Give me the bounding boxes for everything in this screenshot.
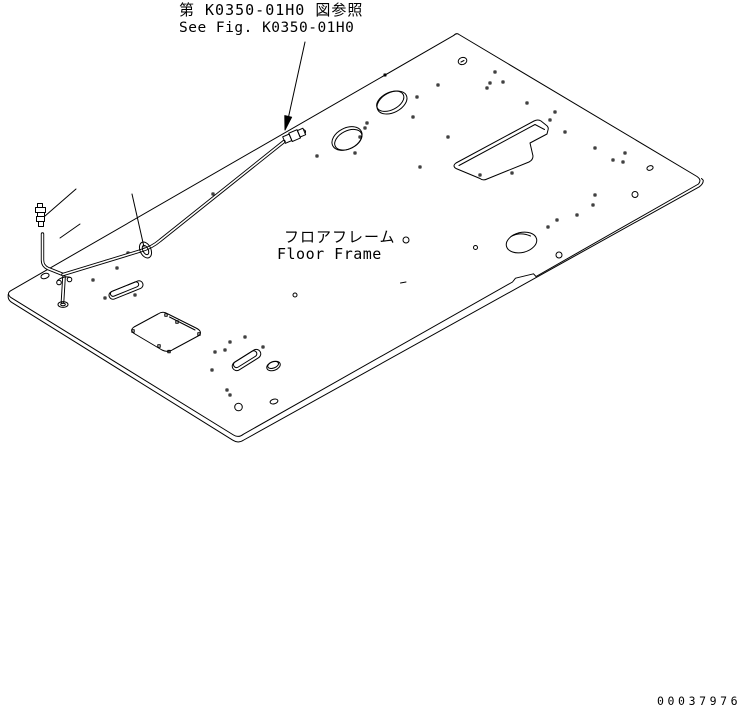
- grease-line-assembly: [36, 127, 308, 308]
- leader-to-clamp: [132, 194, 144, 247]
- reference-note-en: See Fig. K0350-01H0: [179, 20, 354, 37]
- leader-to-tube-end: [60, 224, 80, 238]
- small-hole: [293, 293, 297, 297]
- grease-tube: [43, 142, 285, 303]
- part-label-en: Floor Frame: [277, 246, 382, 263]
- small-hole: [474, 246, 478, 250]
- reference-note-ja: 第 K0350-01H0 図参照: [179, 2, 363, 19]
- oval-hole-upper: [373, 86, 411, 119]
- small-hole-apex: [457, 56, 468, 66]
- small-hole: [646, 165, 654, 171]
- stepped-cutout: [454, 120, 548, 180]
- small-hole: [235, 403, 243, 411]
- slot-bottom-center: [231, 348, 263, 373]
- floor-frame-drawing: [0, 0, 737, 709]
- small-hole: [632, 192, 638, 198]
- oval-hole-lower: [328, 122, 366, 155]
- slot-upper-left: [108, 280, 144, 301]
- drawing-number: 00037976: [657, 695, 737, 708]
- small-hole: [403, 237, 409, 243]
- leader-to-fitting: [45, 189, 76, 216]
- part-label-ja: フロアフレーム: [284, 229, 396, 246]
- reference-arrow: [285, 42, 305, 130]
- small-hole: [556, 252, 562, 258]
- parts-diagram-page: 第 K0350-01H0 図参照 See Fig. K0350-01H0 フロア…: [0, 0, 737, 709]
- small-mark: [401, 282, 407, 283]
- round-hole-large: [504, 229, 539, 256]
- small-oval-bottom: [265, 359, 281, 372]
- grease-fitting: [36, 204, 46, 227]
- elbow-fitting: [282, 127, 307, 144]
- access-cutout: [132, 312, 201, 353]
- leader-lines: [45, 42, 305, 247]
- small-hole: [270, 398, 279, 405]
- plate-thickness-edge: [8, 179, 703, 442]
